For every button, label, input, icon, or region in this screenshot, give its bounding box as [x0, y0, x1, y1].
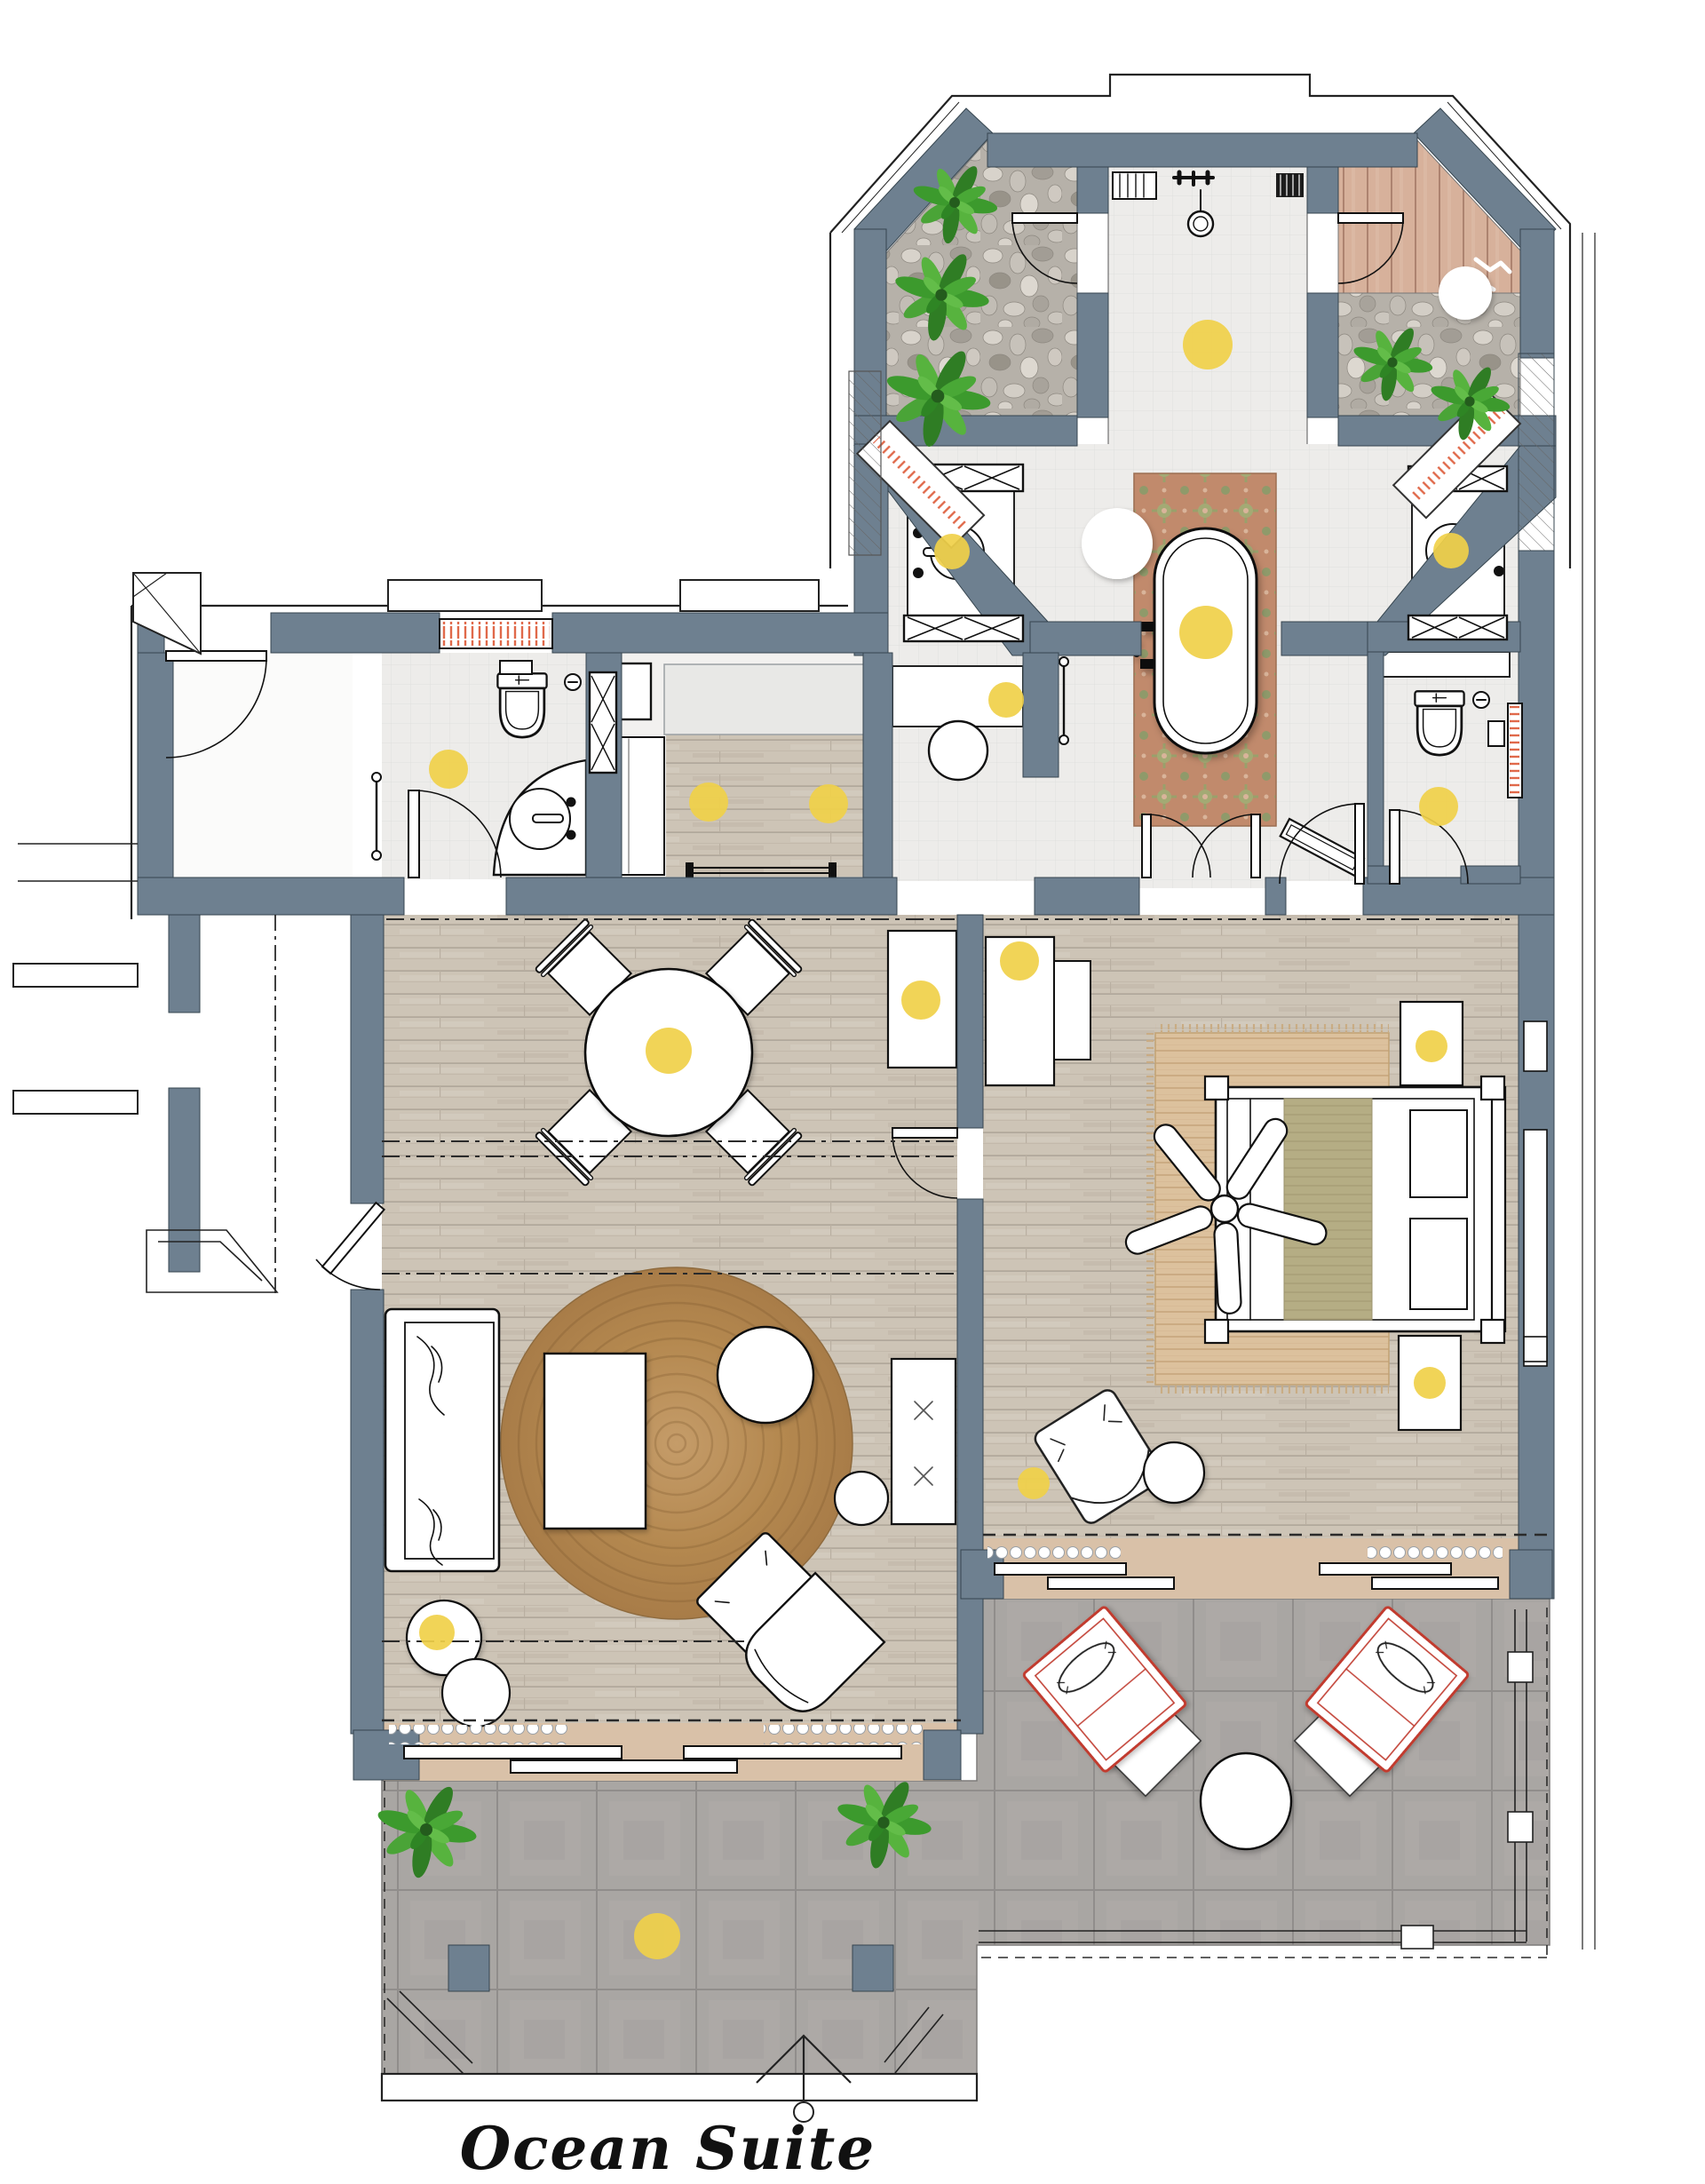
- door-leaf: [408, 790, 419, 878]
- wall: [351, 1290, 384, 1734]
- railing-post: [1401, 1926, 1433, 1949]
- desk-chair: [1054, 961, 1090, 1060]
- wall: [1368, 866, 1392, 884]
- bedroom-side-table: [1144, 1442, 1204, 1503]
- bed-rug-fringe: [1155, 1385, 1389, 1394]
- wall: [957, 1199, 983, 1734]
- pillow: [1410, 1110, 1467, 1197]
- louver-window: [590, 672, 616, 773]
- exterior-ledge: [680, 580, 819, 611]
- door-leaf: [1355, 804, 1364, 884]
- ceiling-light-icon: [429, 750, 468, 789]
- wall-niche: [1378, 652, 1510, 677]
- railing-post: [1508, 1652, 1533, 1682]
- wall-niche: [1524, 1337, 1547, 1362]
- sliding-panel: [995, 1563, 1126, 1575]
- wall: [138, 653, 173, 915]
- bed-post: [1205, 1320, 1228, 1343]
- door-leaf: [892, 1128, 957, 1138]
- door-leaf: [166, 651, 266, 661]
- wall: [987, 133, 1417, 167]
- wall: [1265, 878, 1286, 915]
- door-leaf: [1251, 814, 1260, 878]
- parapet-stub: [13, 964, 138, 987]
- pillow: [1410, 1219, 1467, 1309]
- headboard: [1492, 1087, 1505, 1331]
- bed-runner: [1284, 1099, 1372, 1320]
- bed-post: [1481, 1076, 1504, 1100]
- wall: [169, 1088, 200, 1272]
- door-leaf: [1338, 213, 1403, 223]
- ceiling-light-icon: [1433, 533, 1469, 568]
- ceiling-light-icon: [1018, 1467, 1050, 1499]
- ceiling-light-icon: [934, 534, 970, 569]
- round-light-icon: [1439, 266, 1492, 320]
- wall: [169, 915, 200, 1013]
- round-light-icon: [1082, 508, 1153, 579]
- ceiling-light-icon: [419, 1615, 455, 1650]
- bed-rug-fringe: [1146, 1033, 1155, 1385]
- sliding-panel: [511, 1760, 737, 1773]
- column: [1510, 1550, 1552, 1599]
- ceiling-light-icon: [901, 981, 940, 1020]
- wall-niche: [1524, 1021, 1547, 1071]
- sofa: [385, 1309, 499, 1571]
- closet-cabinet: [664, 664, 866, 735]
- railing-post: [1508, 1812, 1533, 1842]
- door-leaf: [1390, 810, 1400, 884]
- sliding-panel: [1048, 1577, 1174, 1589]
- wall: [1035, 878, 1139, 915]
- vent-window: [440, 619, 552, 648]
- wall: [1368, 652, 1384, 884]
- side-table: [835, 1472, 888, 1525]
- ceiling-light-icon: [689, 782, 728, 822]
- bed-post: [1481, 1320, 1504, 1343]
- tv-console: [892, 1359, 956, 1524]
- sliding-panel: [1320, 1563, 1451, 1575]
- curtain: [987, 1540, 1121, 1560]
- ceiling-light-icon: [646, 1028, 692, 1074]
- wall: [1520, 229, 1554, 358]
- wall: [1307, 167, 1338, 213]
- entry-vestibule-floor: [155, 653, 353, 879]
- ceiling-light-icon: [634, 1913, 680, 1959]
- wall: [271, 613, 440, 653]
- sliding-panel: [404, 1746, 622, 1759]
- ceiling-light-icon: [1416, 1030, 1447, 1062]
- ceiling-light-icon: [809, 784, 848, 823]
- door-leaf: [322, 1203, 385, 1274]
- bed-rug-fringe: [1155, 1024, 1389, 1033]
- column: [448, 1945, 489, 1991]
- wall: [1077, 167, 1108, 213]
- vent-window: [1508, 703, 1522, 798]
- door-leaf: [1142, 814, 1151, 878]
- wall: [1461, 866, 1520, 884]
- column: [924, 1730, 961, 1780]
- stool: [929, 721, 987, 780]
- floor-plan-page: Ocean Suite: [0, 0, 1705, 2184]
- curtain: [389, 1725, 568, 1744]
- wall: [1519, 551, 1554, 881]
- door-leaf: [1012, 213, 1077, 223]
- ceiling-light-icon: [1179, 606, 1233, 659]
- sliding-panel: [684, 1746, 901, 1759]
- wall: [552, 613, 888, 653]
- wall: [1023, 653, 1059, 777]
- wall: [1281, 622, 1370, 655]
- towel-rail: [372, 773, 381, 860]
- ceiling-light-icon: [988, 682, 1024, 718]
- terrace-low-wall: [382, 2074, 977, 2101]
- sliding-panel: [1372, 1577, 1498, 1589]
- wall: [506, 878, 897, 915]
- wall: [957, 915, 983, 1128]
- wall: [138, 878, 404, 915]
- terrace-table: [1201, 1753, 1291, 1849]
- curtain: [764, 1725, 924, 1744]
- outer-gallery-line: [1582, 233, 1595, 1950]
- ceiling-light-icon: [1419, 787, 1458, 826]
- trellis-screen: [849, 371, 881, 555]
- built-in-wardrobe: [1524, 1130, 1547, 1366]
- exterior-ledge: [388, 580, 542, 611]
- bed-post: [1205, 1076, 1228, 1100]
- wall: [1030, 622, 1141, 655]
- trellis-screen: [1519, 353, 1554, 552]
- wall: [351, 915, 384, 1203]
- coffee-table: [544, 1354, 646, 1529]
- floor-plan: Ocean Suite: [0, 0, 1705, 2184]
- round-table: [442, 1659, 510, 1727]
- wall: [863, 653, 892, 878]
- column: [852, 1945, 893, 1991]
- curtain: [1368, 1540, 1503, 1560]
- parapet-stub: [13, 1091, 138, 1114]
- ground-line: [18, 844, 138, 881]
- pouf: [718, 1327, 813, 1423]
- ceiling-light-icon: [1414, 1367, 1446, 1399]
- wall: [1307, 293, 1338, 417]
- ceiling-light-icon: [1000, 941, 1039, 981]
- steps: [147, 1230, 277, 1292]
- plan-title: Ocean Suite: [460, 2114, 876, 2183]
- ceiling-light-icon: [1183, 320, 1233, 369]
- wall: [1077, 293, 1108, 417]
